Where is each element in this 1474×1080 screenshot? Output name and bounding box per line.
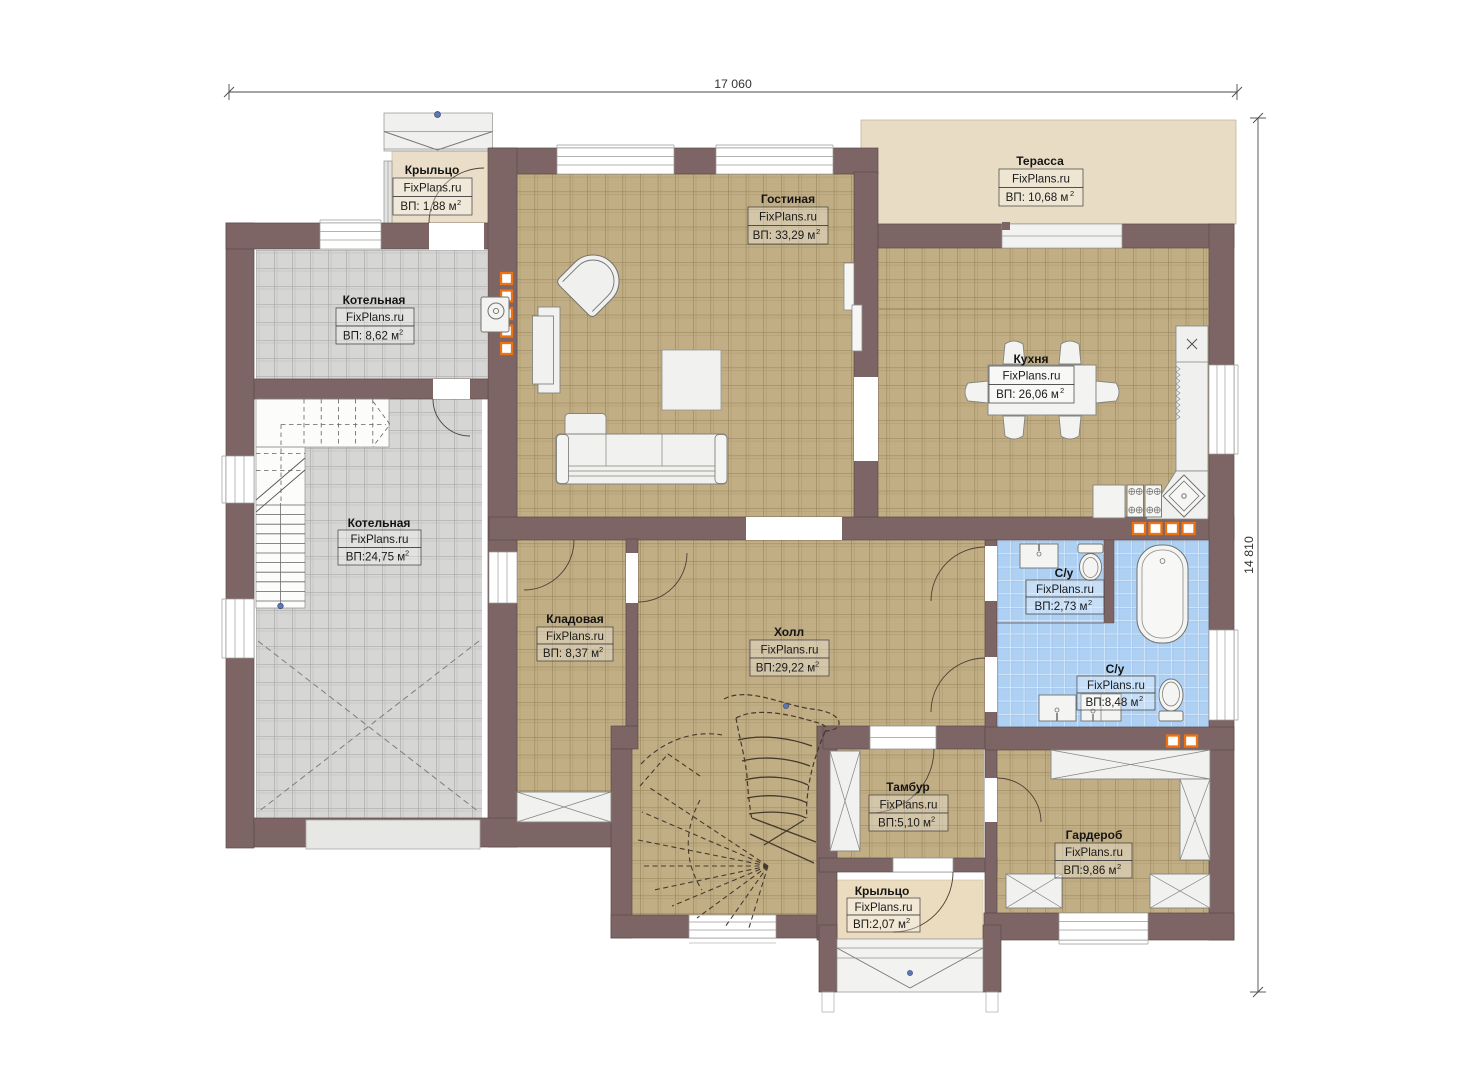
svg-text:ВП:2,07 м: ВП:2,07 м — [853, 918, 906, 931]
svg-text:Крыльцо: Крыльцо — [855, 884, 910, 898]
svg-text:2: 2 — [1088, 598, 1092, 607]
svg-text:17 060: 17 060 — [714, 77, 752, 91]
svg-text:2: 2 — [931, 815, 935, 824]
svg-text:ВП:2,73 м: ВП:2,73 м — [1034, 600, 1087, 613]
svg-text:Холл: Холл — [774, 625, 804, 639]
svg-text:Гостиная: Гостиная — [761, 192, 815, 206]
svg-text:2: 2 — [1117, 862, 1121, 871]
svg-text:2: 2 — [815, 660, 819, 669]
svg-text:Котельная: Котельная — [348, 516, 411, 530]
svg-text:Терасса: Терасса — [1016, 154, 1064, 168]
svg-text:ВП: 26,06 м: ВП: 26,06 м — [996, 388, 1059, 401]
svg-text:FixPlans.ru: FixPlans.ru — [346, 311, 404, 324]
svg-text:Котельная: Котельная — [343, 293, 406, 307]
svg-text:FixPlans.ru: FixPlans.ru — [546, 630, 604, 643]
svg-text:Гардероб: Гардероб — [1066, 828, 1123, 842]
svg-text:Крыльцо: Крыльцо — [405, 163, 460, 177]
svg-text:2: 2 — [906, 916, 910, 925]
svg-text:FixPlans.ru: FixPlans.ru — [1065, 846, 1123, 859]
svg-text:Тамбур: Тамбур — [886, 780, 930, 794]
svg-text:FixPlans.ru: FixPlans.ru — [351, 533, 409, 546]
svg-text:2: 2 — [599, 645, 603, 654]
svg-text:FixPlans.ru: FixPlans.ru — [1003, 370, 1061, 383]
svg-text:ВП: 1,88 м: ВП: 1,88 м — [400, 200, 456, 213]
svg-text:ВП:9,86 м: ВП:9,86 м — [1063, 864, 1116, 877]
svg-text:FixPlans.ru: FixPlans.ru — [1087, 679, 1145, 692]
svg-text:FixPlans.ru: FixPlans.ru — [759, 211, 817, 224]
svg-text:Кухня: Кухня — [1013, 352, 1048, 366]
svg-text:ВП:8,48 м: ВП:8,48 м — [1085, 696, 1138, 709]
svg-text:С/у: С/у — [1055, 566, 1074, 580]
svg-text:FixPlans.ru: FixPlans.ru — [404, 182, 462, 195]
svg-text:FixPlans.ru: FixPlans.ru — [880, 799, 938, 812]
svg-text:ВП:5,10 м: ВП:5,10 м — [878, 817, 931, 830]
svg-text:2: 2 — [1060, 386, 1064, 395]
svg-text:2: 2 — [816, 227, 820, 236]
svg-text:ВП: 8,37 м: ВП: 8,37 м — [543, 647, 599, 660]
svg-text:ВП: 10,68 м: ВП: 10,68 м — [1006, 191, 1069, 204]
svg-text:ВП: 33,29 м: ВП: 33,29 м — [753, 229, 816, 242]
svg-text:ВП: 8,62 м: ВП: 8,62 м — [343, 330, 399, 343]
svg-text:14 810: 14 810 — [1242, 536, 1256, 574]
svg-text:2: 2 — [1070, 189, 1074, 198]
svg-text:ВП:24,75 м: ВП:24,75 м — [346, 551, 406, 564]
svg-text:С/у: С/у — [1106, 662, 1125, 676]
svg-text:FixPlans.ru: FixPlans.ru — [1012, 173, 1070, 186]
svg-text:Кладовая: Кладовая — [546, 612, 603, 626]
svg-text:ВП:29,22 м: ВП:29,22 м — [756, 662, 816, 675]
svg-text:FixPlans.ru: FixPlans.ru — [761, 644, 819, 657]
svg-text:2: 2 — [405, 549, 409, 558]
svg-text:FixPlans.ru: FixPlans.ru — [1036, 583, 1094, 596]
svg-text:2: 2 — [1139, 694, 1143, 703]
svg-text:2: 2 — [399, 328, 403, 337]
svg-text:2: 2 — [457, 198, 461, 207]
svg-text:FixPlans.ru: FixPlans.ru — [855, 901, 913, 914]
